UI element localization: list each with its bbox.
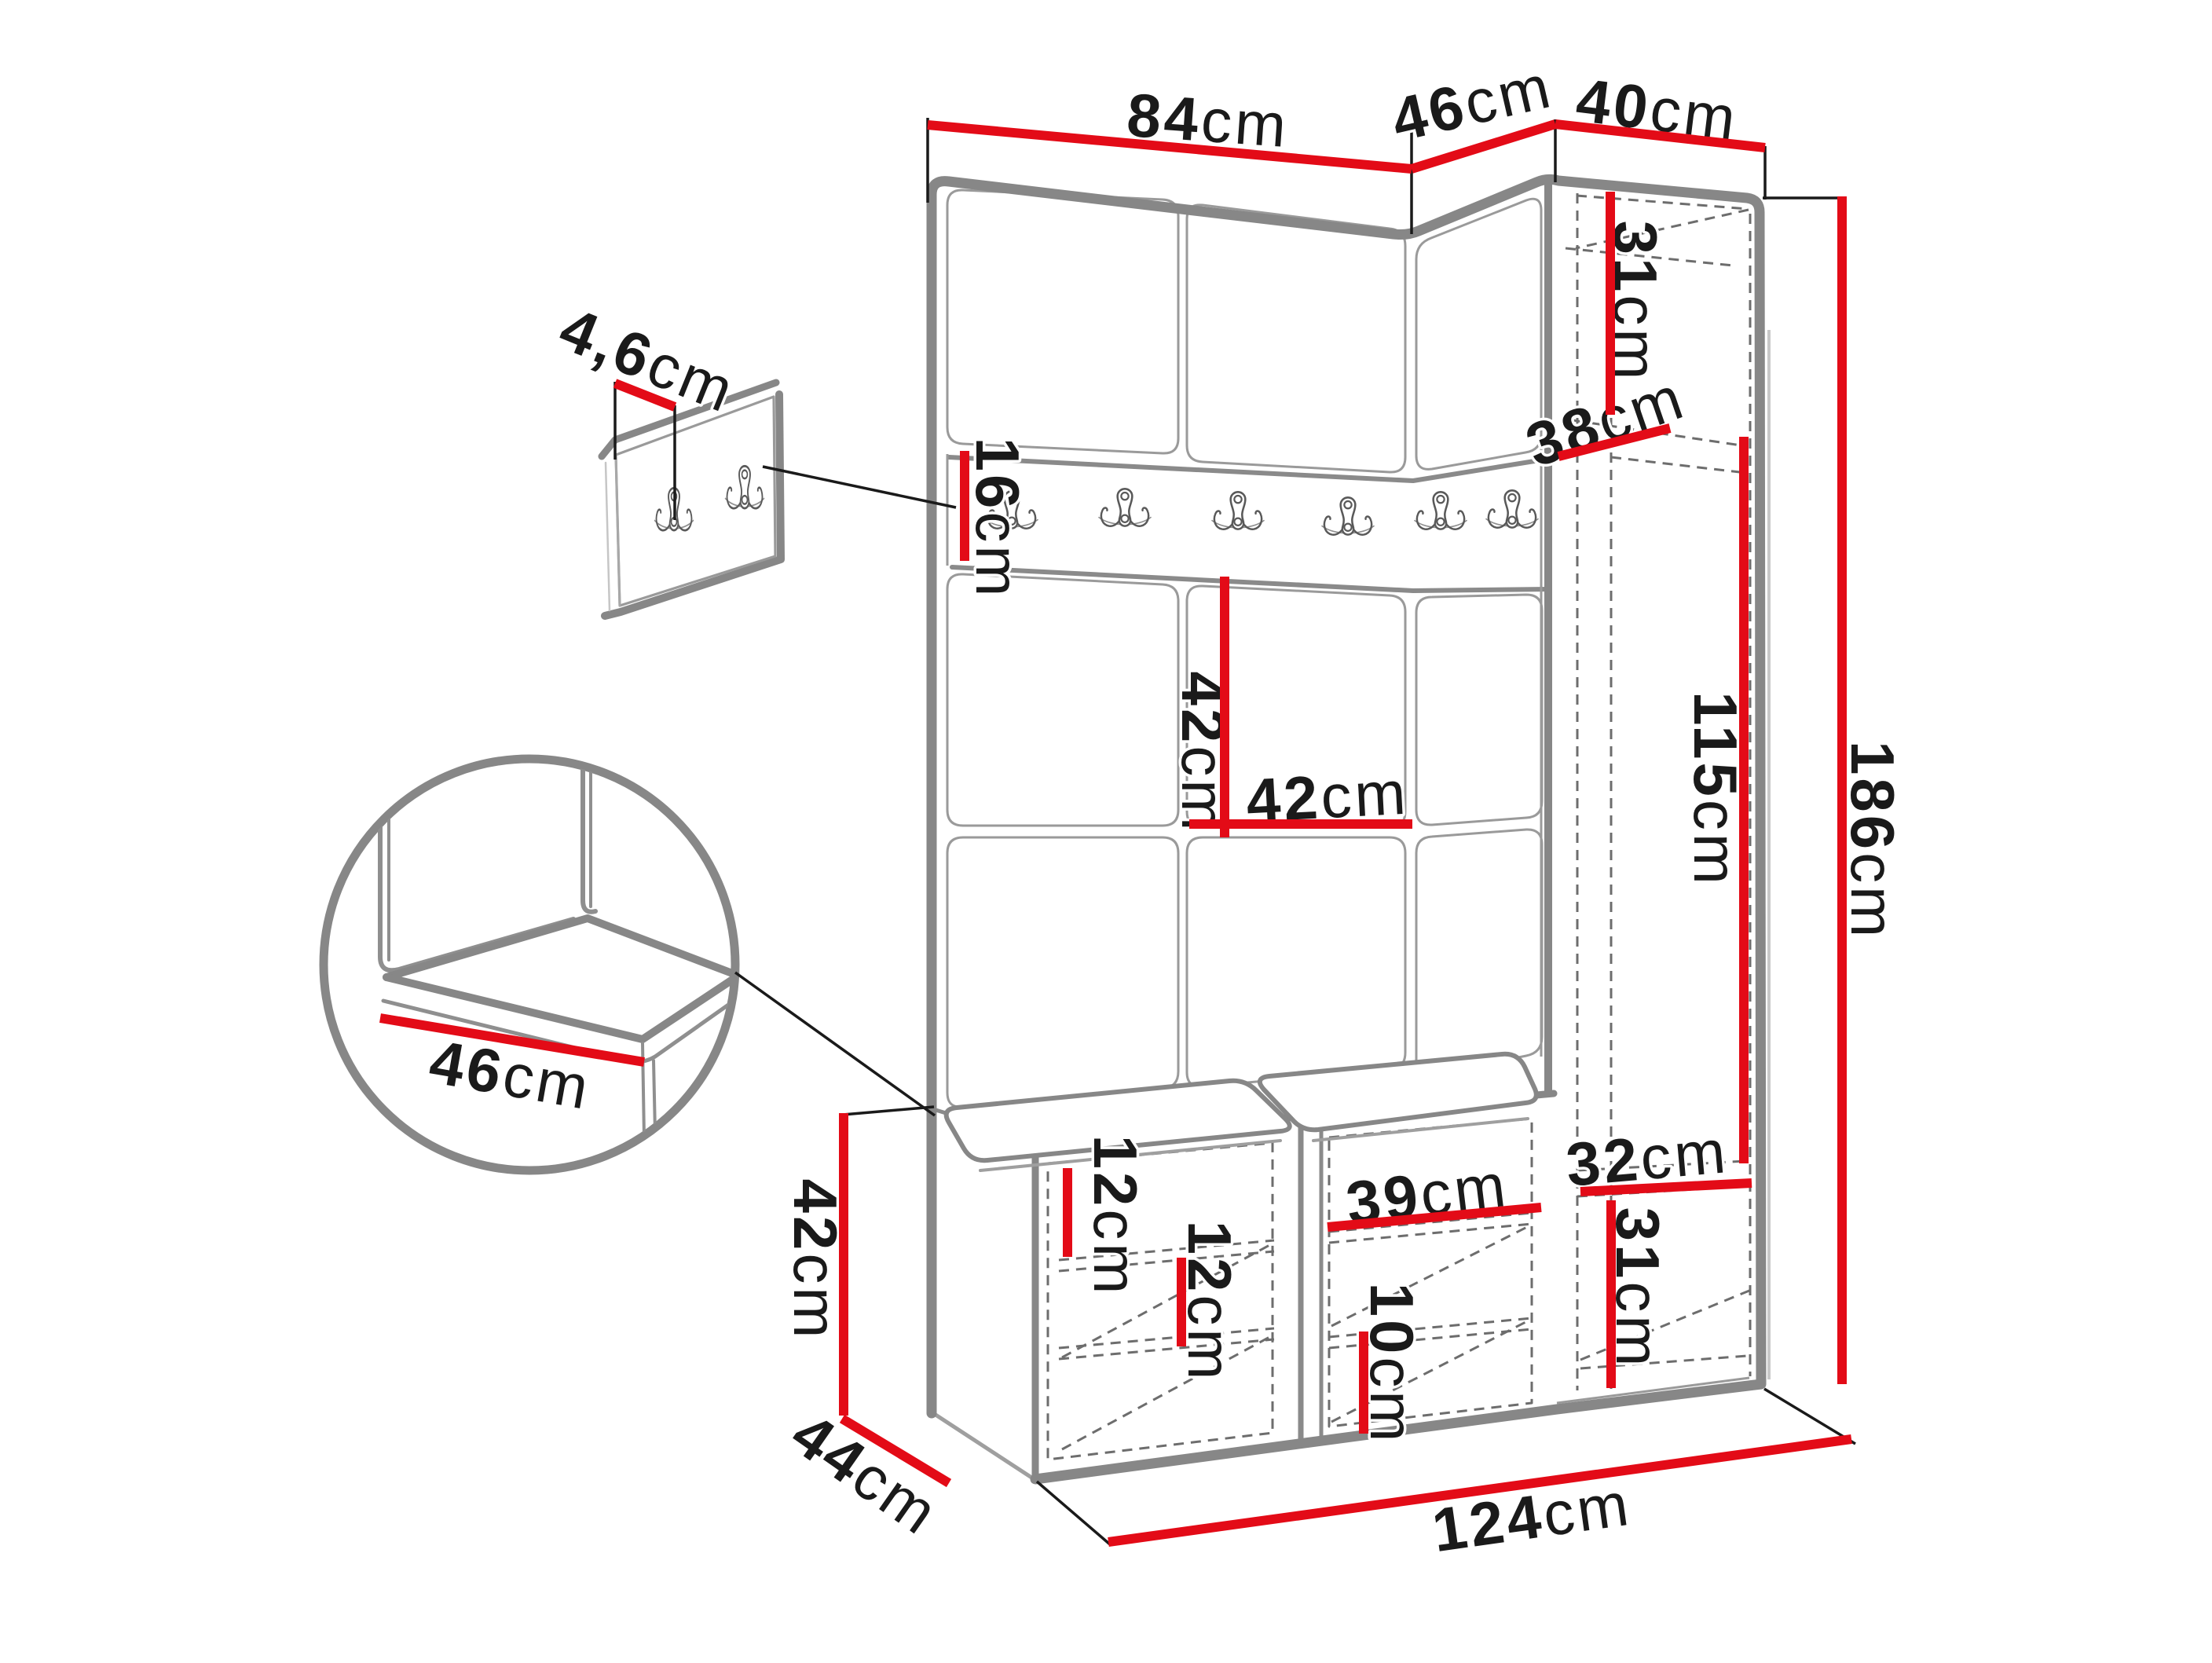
svg-text:186cm: 186cm xyxy=(1838,741,1907,940)
svg-text:16cm: 16cm xyxy=(963,438,1032,600)
svg-text:12cm: 12cm xyxy=(1081,1135,1150,1298)
